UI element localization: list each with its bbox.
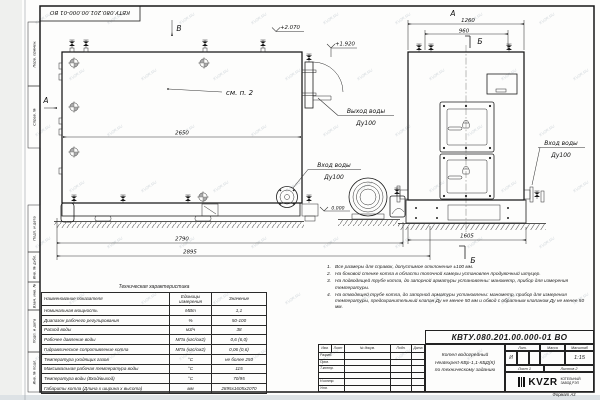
doc-number: КВТУ.080.201.00.000-01 ВО — [425, 330, 594, 344]
view-b-label: В — [176, 24, 181, 33]
svg-text:1260: 1260 — [461, 18, 475, 24]
note-item: 2.На боковой стенке котла в области топо… — [327, 272, 589, 278]
side-label-5: Подп. и дата — [33, 319, 37, 343]
sheet-number: Лист 1 — [505, 365, 544, 372]
outlet-water-label: Выход воды Ду100 — [318, 98, 394, 127]
tech-characteristics-table: Техническая характеристика Наименование … — [41, 283, 267, 394]
side-label-2: Подп. и дата — [33, 216, 37, 240]
lit-value: И — [505, 351, 517, 365]
svg-text:Ду100: Ду100 — [355, 120, 376, 127]
inlet-water-label-front: Вход воды Ду100 — [532, 140, 585, 185]
table-row: Номинальная мощностьМВт1,1 — [42, 305, 266, 315]
table-row: Габариты котла (Длина х ширина х высота)… — [42, 383, 266, 393]
boiler-side-view — [59, 40, 405, 222]
note-item: 1.Все размеры для справок, допустимое от… — [327, 265, 589, 271]
side-label-6: Инв. № подл. — [33, 360, 37, 385]
dimension-960: 960 — [425, 29, 508, 51]
upper-door — [440, 102, 494, 152]
elevation-top: +2.070 — [280, 25, 301, 31]
svg-text:960: 960 — [459, 29, 470, 35]
side-label-3: Инв. № дубл. — [33, 255, 37, 280]
dimension-2650: 2650 — [63, 131, 301, 138]
svg-text:2790: 2790 — [175, 237, 189, 243]
section-b-label-top: Б — [477, 37, 482, 46]
frame-side-boxes: Перв. примен. Справ. № Подп. и дата Инв.… — [28, 22, 40, 392]
drain-valves — [71, 195, 191, 203]
grid-col-docnum: № докум. — [345, 345, 391, 352]
control-box — [487, 74, 517, 94]
col-header-value: Значение — [211, 293, 266, 305]
section-a-label: А — [42, 96, 48, 105]
logo-bars-icon — [518, 377, 525, 387]
side-label-1: Справ. № — [33, 108, 37, 126]
top-valves-front — [416, 44, 512, 52]
table-row: Температура воды (Вход/выход)°С70/95 — [42, 373, 266, 383]
product-description: Котел водогрейный Heatexpert-КВр-1,1-КБД… — [425, 344, 505, 392]
revision-grid: Изм. Лист № докум. Подп. Дата Разраб. Пр… — [318, 344, 425, 392]
svg-text:1605: 1605 — [460, 234, 474, 240]
col-header-units: Единицы измерения — [169, 293, 211, 305]
scale-value: 1:15 — [565, 351, 594, 365]
svg-text:2650: 2650 — [175, 131, 189, 137]
inlet-water-label-side: Вход воды Ду100 — [293, 162, 361, 188]
table-row: Расход водым3/ч38 — [42, 325, 266, 335]
table-row: Диапазон рабочего регулирования%50-100 — [42, 315, 266, 325]
see-note-annotation: см. п. 2 — [226, 89, 254, 97]
table-row: Температура уходящих газов°Сне более 250 — [42, 354, 266, 364]
note-item: 4.На отводящей трубе котла, до запорной … — [327, 293, 589, 312]
sheets-total: Листов 2 — [544, 365, 594, 372]
title-block: КВТУ.080.201.00.000-01 ВО Изм. Лист № до… — [318, 330, 594, 392]
svg-text:Вход воды: Вход воды — [317, 162, 351, 169]
note-item: 3.На подводящей трубе котла, до запорной… — [327, 279, 589, 291]
lower-door — [440, 154, 494, 199]
grid-col-podp: Подп. — [391, 345, 412, 352]
kvzr-logo: KVZR КОТЕЛЬНЫЙ ЗАВОД РЭП — [505, 372, 594, 392]
top-valves-side — [69, 40, 266, 52]
grid-col-data: Дата — [412, 345, 424, 352]
base-frame-side — [61, 203, 300, 222]
front-view-a-label: А — [449, 9, 455, 18]
ground-hatching — [54, 220, 546, 231]
boiler-front-view — [397, 44, 544, 232]
tech-table-title: Техническая характеристика — [41, 283, 267, 292]
table-row: Гидравлическое сопротивление котлаМПа (к… — [42, 344, 266, 354]
burner-assembly — [390, 188, 405, 217]
fan-blower — [349, 178, 387, 219]
svg-text:Ду100: Ду100 — [323, 174, 344, 181]
table-row: Максимальная рабочая температура воды°С1… — [42, 364, 266, 374]
scale-header: Масштаб — [565, 344, 594, 351]
mass-header: Масса — [540, 344, 565, 351]
side-label-4: Взам. инв. № — [33, 284, 37, 309]
lit-header: Лит. — [505, 344, 540, 351]
elevation-outlet: +1.920 — [335, 42, 356, 48]
side-label-0: Перв. примен. — [33, 41, 37, 68]
section-b-label-bottom: Б — [470, 256, 475, 265]
col-header-name: Наименование показателя — [42, 293, 169, 305]
elevation-zero: 0.000 — [331, 206, 344, 212]
svg-text:2895: 2895 — [183, 250, 197, 256]
tech-table-header: Наименование показателя Единицы измерени… — [42, 293, 266, 305]
grid-col-list: Лист — [332, 345, 345, 352]
stamp-doc-number: КВТУ.080.201.00.000-01 ВО — [49, 9, 130, 15]
drawing-sheet: { "sheet": { "stamp_top": "КВТУ.080.201.… — [0, 0, 600, 400]
grid-col-izm: Изм. — [319, 345, 332, 352]
table-row: Рабочее давление водыМПа (кгс/см2)0,6 (6… — [42, 334, 266, 344]
format-label: Формат А3 — [538, 392, 590, 400]
svg-text:Ду100: Ду100 — [550, 152, 571, 159]
svg-text:Вход воды: Вход воды — [544, 140, 578, 147]
row-utv: Утв. — [319, 386, 345, 392]
mass-value — [540, 351, 565, 365]
drawing-notes: 1.Все размеры для справок, допустимое от… — [327, 265, 589, 313]
svg-text:Выход воды: Выход воды — [347, 108, 385, 115]
outlet-pipe — [302, 54, 343, 108]
